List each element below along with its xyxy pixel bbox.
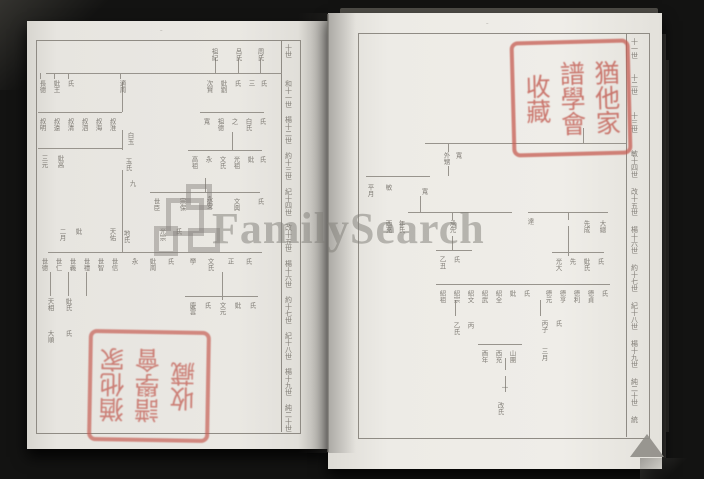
seal-column-1: 猶他家 <box>99 348 128 423</box>
book-fore-edge-inner <box>666 60 669 432</box>
right-page-number-mark: – <box>486 21 489 27</box>
page-corner-fold <box>630 434 664 457</box>
left-generation-column-divider <box>281 40 282 432</box>
left-page-number-mark: – <box>160 28 163 34</box>
seal-column-2: 譜學會 <box>134 348 163 423</box>
book-cover-corner-shadow <box>640 458 690 479</box>
seal-column-2: 譜學會 <box>556 60 586 136</box>
seal-column-3: 收藏 <box>170 361 199 411</box>
archive-seal-right-page: 猶他家 譜學會 收藏 <box>510 38 633 157</box>
seal-column-1: 猶他家 <box>591 59 621 135</box>
scanned-book-photo: – – 祖紀呂氏周氏長德妣王氏適周次賢妣劉氏三氏叔明叔遠叔清叔泗叔海叔淮寬祖德之… <box>0 0 704 479</box>
seal-column-3: 收藏 <box>522 74 551 125</box>
archive-seal-left-page: 猶他家 譜學會 收藏 <box>87 329 211 443</box>
book-fold-line <box>327 14 329 452</box>
